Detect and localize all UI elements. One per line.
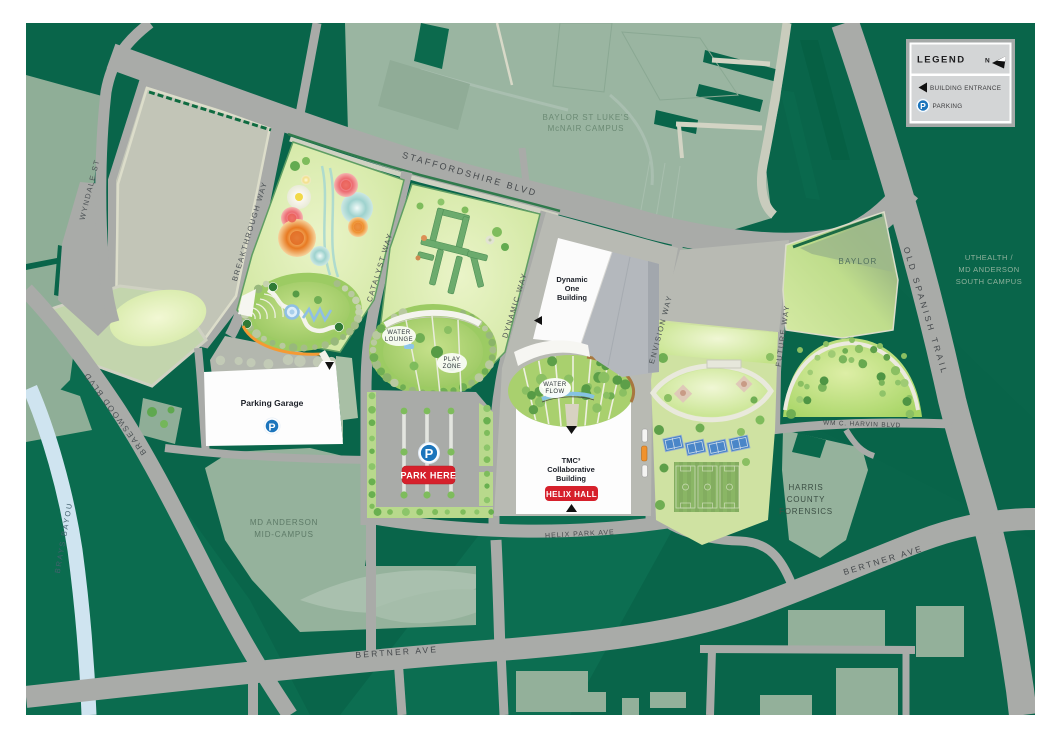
svg-text:MD ANDERSON: MD ANDERSON [958,265,1019,274]
svg-text:MD ANDERSON: MD ANDERSON [250,518,318,527]
svg-text:Dynamic: Dynamic [556,275,587,284]
svg-text:Collaborative: Collaborative [547,465,595,474]
svg-text:UTHEALTH /: UTHEALTH / [965,253,1014,262]
svg-text:SOUTH CAMPUS: SOUTH CAMPUS [956,277,1022,286]
svg-text:HARRIS: HARRIS [788,483,823,492]
svg-text:N: N [985,58,990,65]
svg-text:HELIX HALL: HELIX HALL [546,490,597,499]
svg-text:WATER: WATER [543,382,567,388]
svg-text:TMC³: TMC³ [562,456,581,465]
svg-text:BAYLOR: BAYLOR [838,257,877,266]
svg-text:LOUNGE: LOUNGE [385,337,413,343]
svg-text:P: P [425,446,434,461]
svg-text:One: One [565,284,580,293]
svg-text:FORENSICS: FORENSICS [779,507,833,516]
svg-text:MID-CAMPUS: MID-CAMPUS [254,530,314,539]
svg-text:ZONE: ZONE [443,364,462,370]
svg-text:PLAY: PLAY [444,357,461,363]
svg-text:McNAIR CAMPUS: McNAIR CAMPUS [548,124,625,133]
svg-text:PARK HERE: PARK HERE [401,471,457,481]
svg-text:WATER: WATER [387,330,411,336]
svg-text:LEGEND: LEGEND [917,55,966,66]
svg-text:BAYLOR ST LUKE'S: BAYLOR ST LUKE'S [543,113,630,122]
svg-text:FLOW: FLOW [545,389,564,395]
svg-text:Parking Garage: Parking Garage [241,398,304,408]
svg-text:Building: Building [557,293,587,302]
svg-text:P: P [920,101,926,111]
svg-text:P: P [268,422,275,434]
svg-text:Building: Building [556,474,586,483]
svg-text:COUNTY: COUNTY [787,495,826,504]
svg-text:PARKING: PARKING [933,103,963,110]
svg-text:BUILDING ENTRANCE: BUILDING ENTRANCE [930,85,1001,92]
